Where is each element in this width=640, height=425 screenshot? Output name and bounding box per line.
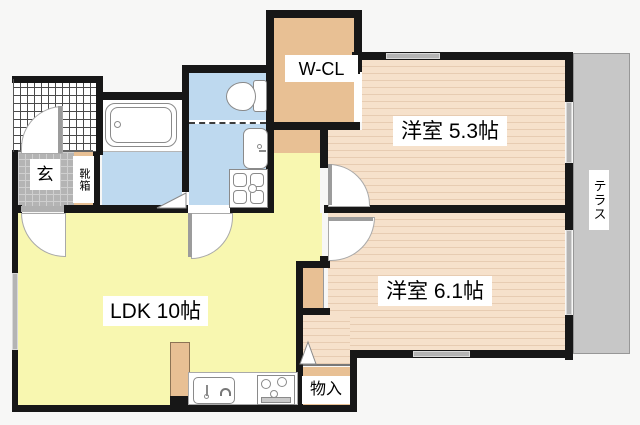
- bathtub-drain: [114, 121, 121, 128]
- washer-pan-cell: [233, 173, 247, 187]
- porch-edge-line: [13, 79, 14, 152]
- wall: [12, 76, 100, 83]
- washbasin-faucet-bar: [259, 150, 266, 152]
- label-wcl-text: W-CL: [299, 60, 345, 78]
- storage-folding-door-icon: [299, 341, 318, 365]
- bath-folding-door-icon: [157, 192, 187, 210]
- kitchen-pillar: [170, 342, 190, 398]
- entrance-door-leaf: [58, 106, 62, 153]
- label-61-text: 洋室 6.1帖: [386, 281, 484, 302]
- toilet-bowl-icon: [226, 82, 256, 111]
- wall: [266, 122, 360, 130]
- window: [566, 102, 572, 163]
- window: [386, 53, 440, 59]
- toilet-partition-dashed: [189, 120, 266, 124]
- label-terrace-text: テラス: [593, 179, 606, 221]
- stove-burner: [277, 377, 287, 387]
- wall: [170, 396, 188, 412]
- wall: [93, 152, 100, 213]
- label-entrance-text: 玄: [37, 166, 54, 183]
- wall: [96, 76, 103, 155]
- washroom-door-leaf: [188, 213, 192, 257]
- wall: [565, 163, 573, 230]
- wall: [96, 92, 188, 100]
- wall: [350, 350, 357, 412]
- label-terrace: テラス: [589, 170, 609, 230]
- label-ldk: LDK 10帖: [103, 296, 208, 326]
- wall: [12, 350, 18, 412]
- washer-drain: [248, 184, 257, 193]
- sink-faucet-arch: [220, 388, 231, 396]
- label-storage-text: 物入: [310, 382, 342, 398]
- entrance-hall-door-leaf: [21, 206, 64, 212]
- stove-grill: [261, 397, 291, 403]
- washbasin-icon: [243, 128, 268, 169]
- door-gap: [188, 205, 230, 213]
- label-entrance: 玄: [30, 159, 60, 190]
- wall: [320, 130, 328, 168]
- window: [566, 230, 572, 315]
- label-ldk-text: LDK 10帖: [110, 301, 201, 322]
- label-storage: 物入: [302, 376, 350, 404]
- wall: [565, 52, 573, 102]
- wall: [352, 52, 572, 60]
- washbasin-faucet: [257, 144, 262, 149]
- room-ldk-corridor: [274, 153, 320, 213]
- western-61-door-leaf: [328, 217, 373, 221]
- wall: [182, 65, 274, 73]
- label-western-room-61: 洋室 6.1帖: [378, 276, 492, 306]
- closet-nook: [303, 268, 324, 308]
- label-shoe-box-text: 靴箱: [78, 168, 89, 192]
- label-53-text: 洋室 5.3帖: [401, 121, 499, 142]
- stove-burner: [261, 379, 271, 389]
- label-shoe-box: 靴箱: [73, 156, 94, 203]
- hall-closet-upper: [274, 130, 320, 153]
- sink-lever: [206, 385, 208, 396]
- washer-pan-cell: [233, 190, 247, 204]
- window: [12, 273, 18, 350]
- label-walk-in-closet: W-CL: [285, 55, 358, 82]
- floor-plan: 玄 靴箱 W-CL 洋室 5.3帖 テラス 洋室 6.1帖 LDK 10帖 物入: [0, 0, 640, 425]
- wall: [182, 65, 189, 192]
- wall: [266, 10, 362, 18]
- label-western-room-53: 洋室 5.3帖: [393, 116, 507, 146]
- window: [413, 351, 470, 357]
- western-53-door-leaf: [328, 164, 332, 205]
